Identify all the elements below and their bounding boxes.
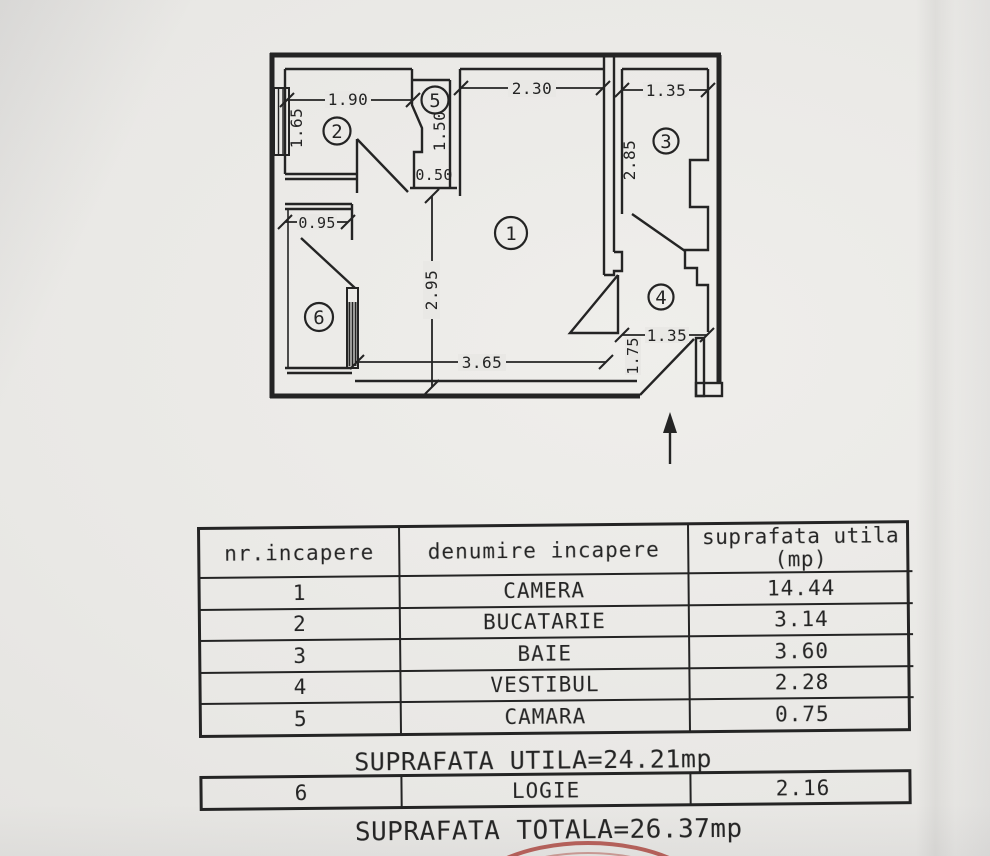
dim-295-label: 2.95 <box>422 270 441 311</box>
row-nr: 5 <box>202 701 402 734</box>
row-nr: 3 <box>201 638 401 671</box>
row-name: BAIE <box>401 635 690 669</box>
room-2-number: 2 <box>331 121 342 143</box>
dim-050-label: 0.50 <box>415 166 452 184</box>
dim-150-label: 1.50 <box>430 111 449 152</box>
dim-135-top: 1.35 <box>615 81 715 100</box>
row-area: 2.16 <box>691 772 914 803</box>
dim-165: 1.65 <box>287 108 306 149</box>
header-suprafata-utila: suprafata utila (mp) <box>689 523 912 572</box>
window-loggia <box>347 288 358 368</box>
floor-plan: 1.90 1.65 2.30 1.35 1.50 0.50 2. <box>0 0 990 520</box>
room-5-number: 5 <box>429 90 440 112</box>
area-table-block: nr.incapere denumire incapere suprafata … <box>197 520 911 737</box>
dim-175: 1.75 <box>624 337 642 375</box>
room-3-number: 3 <box>660 131 671 153</box>
row-nr: 1 <box>200 575 400 608</box>
room-6-number: 6 <box>313 307 324 329</box>
dim-365-label: 3.65 <box>462 353 503 372</box>
row-name: LOGIE <box>402 774 691 806</box>
entrance-arrow-icon <box>663 412 677 464</box>
dim-285: 2.85 <box>620 140 639 181</box>
row-nr: 6 <box>202 777 402 808</box>
row-name: CAMARA <box>402 698 691 732</box>
room-1-number: 1 <box>505 223 516 245</box>
row-name: BUCATARIE <box>401 604 690 638</box>
dim-175-label: 1.75 <box>624 337 642 374</box>
dim-190: 1.90 <box>280 90 420 109</box>
dim-165-label: 1.65 <box>287 108 306 149</box>
dim-095: 0.95 <box>278 214 355 232</box>
dim-050: 0.50 <box>415 166 452 184</box>
dim-295: 2.95 <box>422 189 441 394</box>
dim-135-top-label: 1.35 <box>646 81 687 100</box>
row-area: 14.44 <box>689 570 912 604</box>
dim-285-label: 2.85 <box>620 140 639 181</box>
row-area: 2.28 <box>690 665 913 699</box>
dim-135-bottom-label: 1.35 <box>647 326 688 345</box>
header-nr-incapere: nr.incapere <box>200 528 400 577</box>
dim-190-label: 1.90 <box>328 90 369 109</box>
dim-230: 2.30 <box>454 79 610 98</box>
dim-095-label: 0.95 <box>298 214 335 232</box>
header-suprafata-line1: suprafata utila <box>702 524 899 549</box>
dim-150: 1.50 <box>430 111 449 152</box>
row-name: CAMERA <box>400 572 689 606</box>
row-area: 3.14 <box>690 602 913 636</box>
row-name: VESTIBUL <box>401 667 690 701</box>
row-area: 0.75 <box>691 696 914 730</box>
header-denumire-incapere: denumire incapere <box>400 525 689 575</box>
header-suprafata-line2: (mp) <box>774 547 827 571</box>
dim-365: 3.65 <box>350 353 613 372</box>
total-suprafata-totala: SUPRAFATA TOTALA=26.37mp <box>355 814 743 848</box>
room-4-number: 4 <box>655 287 666 309</box>
scanned-document-page: 1.90 1.65 2.30 1.35 1.50 0.50 2. <box>0 0 990 856</box>
dim-230-label: 2.30 <box>512 79 553 98</box>
row-area: 3.60 <box>690 633 913 667</box>
row-nr: 4 <box>201 670 401 703</box>
logie-row: 6 LOGIE 2.16 <box>199 769 911 811</box>
area-table: nr.incapere denumire incapere suprafata … <box>197 520 911 737</box>
row-nr: 2 <box>201 607 401 640</box>
